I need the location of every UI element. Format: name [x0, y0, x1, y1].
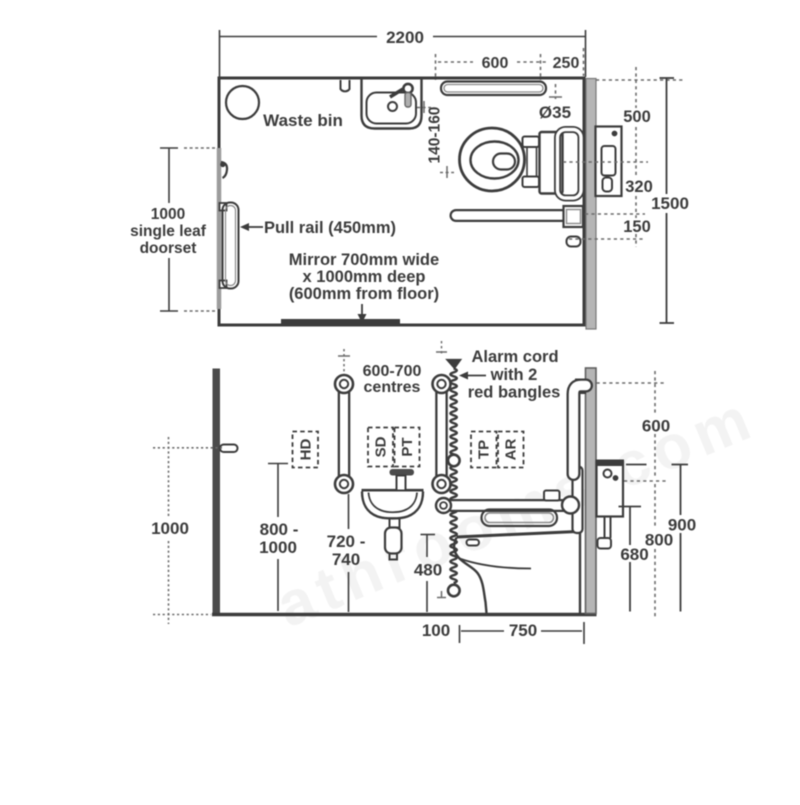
svg-text:TP: TP	[476, 440, 493, 459]
svg-text:600: 600	[482, 55, 509, 72]
svg-text:1000: 1000	[151, 519, 189, 538]
svg-text:140-160: 140-160	[427, 107, 444, 164]
svg-text:AR: AR	[503, 439, 520, 461]
svg-text:red bangles: red bangles	[468, 384, 561, 402]
svg-text:with 2: with 2	[490, 366, 538, 384]
svg-text:2200: 2200	[386, 28, 424, 47]
svg-text:1500: 1500	[651, 194, 689, 213]
svg-text:x 1000mm deep: x 1000mm deep	[303, 268, 426, 286]
svg-text:250: 250	[553, 55, 580, 72]
svg-text:Alarm cord: Alarm cord	[471, 348, 558, 366]
svg-text:150: 150	[623, 218, 651, 236]
svg-text:doorset: doorset	[140, 240, 197, 257]
svg-text:720 -: 720 -	[327, 532, 366, 551]
svg-text:600-700: 600-700	[363, 363, 422, 380]
svg-text:800: 800	[645, 531, 673, 550]
svg-text:SD: SD	[373, 436, 390, 457]
svg-text:680: 680	[620, 545, 648, 564]
svg-text:500: 500	[623, 108, 651, 126]
svg-text:single leaf: single leaf	[130, 223, 207, 240]
svg-text:600: 600	[642, 417, 670, 436]
svg-text:Pull rail (450mm): Pull rail (450mm)	[264, 219, 396, 237]
svg-text:PT: PT	[399, 437, 416, 456]
svg-text:100: 100	[422, 621, 450, 640]
svg-text:320: 320	[625, 178, 653, 196]
svg-text:(600mm from floor): (600mm from floor)	[289, 285, 439, 303]
svg-text:740: 740	[332, 550, 360, 569]
svg-text:480: 480	[414, 561, 442, 580]
svg-text:1000: 1000	[259, 538, 297, 557]
svg-text:1000: 1000	[151, 206, 185, 223]
svg-text:800 -: 800 -	[260, 520, 299, 539]
svg-text:750: 750	[509, 621, 537, 640]
svg-text:Mirror 700mm wide: Mirror 700mm wide	[289, 251, 439, 269]
svg-text:Ø35: Ø35	[539, 103, 571, 122]
svg-text:Waste bin: Waste bin	[263, 111, 343, 130]
svg-text:HD: HD	[298, 439, 315, 461]
svg-text:centres: centres	[364, 379, 421, 396]
